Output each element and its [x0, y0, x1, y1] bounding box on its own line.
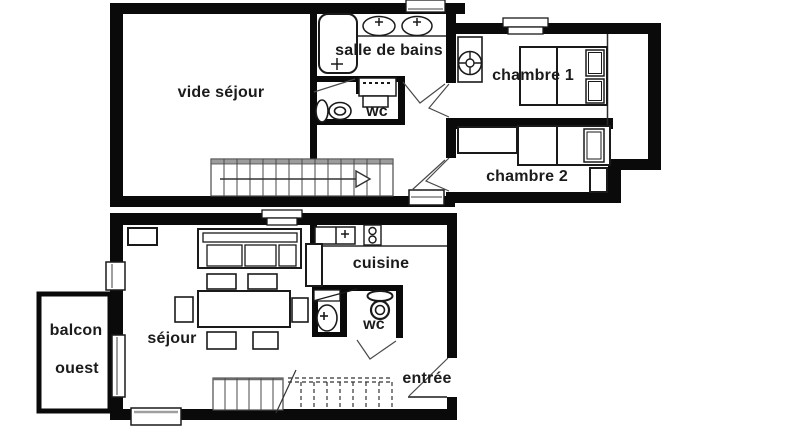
- side-table: [128, 228, 157, 245]
- room-label-vide-sejour: vide séjour: [178, 85, 265, 101]
- room-label-sejour: séjour: [147, 331, 196, 347]
- lower-floor-plan: [39, 210, 457, 425]
- desk: [458, 127, 517, 153]
- floor-plan-svg: [0, 0, 800, 427]
- stove-icon: [364, 225, 381, 245]
- room-label-ouest: ouest: [55, 361, 99, 377]
- balcony-door-icon: [112, 335, 125, 397]
- window-icon: [262, 210, 302, 225]
- window-icon: [503, 18, 548, 34]
- room-label-wc-upper: wc: [366, 104, 388, 120]
- kitchen-sink-icon: [315, 227, 355, 244]
- dining-table: [198, 291, 290, 327]
- room-label-salle-de-bains: salle de bains: [335, 43, 443, 59]
- floor-plan: vide séjour salle de bains wc chambre 1 …: [0, 0, 800, 427]
- heater-unit-icon: [458, 37, 482, 82]
- stairs-hidden-part: [288, 378, 393, 408]
- room-label-chambre-1: chambre 1: [492, 68, 574, 84]
- stairs-down: [213, 370, 393, 413]
- toilet-icon: [316, 100, 351, 122]
- washbasin-icon: [363, 17, 395, 36]
- door-swing: [357, 340, 448, 396]
- shelf: [313, 289, 357, 301]
- toilet-icon: [368, 291, 393, 319]
- sofa: [198, 229, 301, 268]
- room-label-balcon: balcon: [50, 323, 103, 339]
- fridge: [306, 244, 322, 286]
- washbasin-icon: [402, 17, 432, 36]
- washbasin-icon: [317, 305, 337, 331]
- room-label-entree: entrée: [402, 371, 451, 387]
- window-icon: [106, 262, 125, 290]
- room-label-wc-lower: wc: [363, 317, 385, 333]
- room-label-cuisine: cuisine: [353, 256, 410, 272]
- window-icon: [131, 408, 181, 425]
- nightstand: [590, 168, 607, 192]
- stairs-up: [211, 159, 393, 196]
- balcony-outline: [39, 294, 110, 411]
- window-icon: [406, 0, 445, 12]
- single-bed: [518, 126, 610, 165]
- room-label-chambre-2: chambre 2: [486, 169, 568, 185]
